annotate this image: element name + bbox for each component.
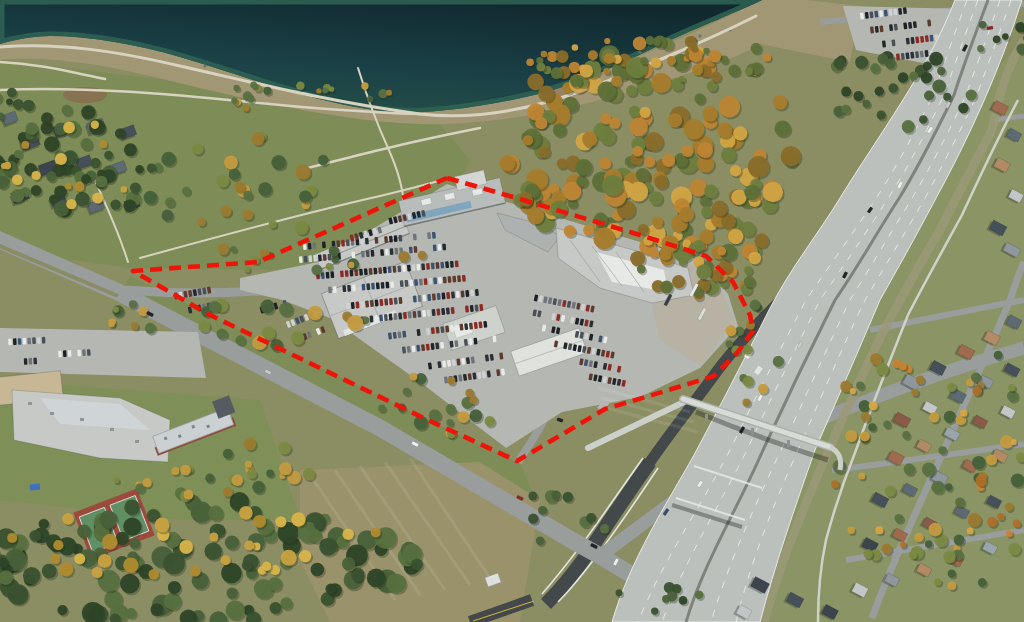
tree xyxy=(717,247,726,256)
tree xyxy=(184,490,194,500)
parked-car xyxy=(422,295,426,302)
parked-car xyxy=(385,282,389,289)
tree xyxy=(343,529,354,540)
tree xyxy=(46,171,56,181)
tree xyxy=(572,44,579,51)
tree xyxy=(845,430,857,442)
tree xyxy=(8,584,29,605)
tree xyxy=(342,557,356,571)
tree xyxy=(110,199,120,209)
tree xyxy=(704,184,718,198)
parked-car xyxy=(402,265,406,272)
tree xyxy=(971,373,981,383)
tree xyxy=(31,171,40,180)
parked-car xyxy=(432,294,436,301)
parked-car xyxy=(446,308,450,315)
parked-car xyxy=(360,238,364,245)
tree xyxy=(947,383,956,392)
tree xyxy=(943,551,955,563)
tree xyxy=(997,513,1004,520)
tree xyxy=(244,438,257,451)
tree xyxy=(563,492,573,502)
parked-car xyxy=(461,291,465,298)
tree xyxy=(860,432,870,442)
tree xyxy=(763,182,783,202)
tree xyxy=(226,601,245,620)
tree xyxy=(909,551,917,559)
tree xyxy=(347,315,363,331)
tree xyxy=(29,530,41,542)
parked-car xyxy=(82,349,86,356)
parked-car xyxy=(383,267,387,274)
tree xyxy=(126,608,136,618)
tree xyxy=(582,132,597,147)
tree xyxy=(651,607,658,614)
parked-car xyxy=(405,280,409,287)
tree xyxy=(662,154,675,167)
tree xyxy=(733,126,747,140)
parked-car xyxy=(330,271,334,278)
tree xyxy=(135,165,144,174)
parked-car xyxy=(389,236,393,243)
tree xyxy=(667,56,676,65)
tree xyxy=(1011,473,1024,487)
tree xyxy=(303,468,315,480)
tree xyxy=(1011,439,1017,445)
parked-car xyxy=(418,295,422,302)
tree xyxy=(600,129,616,145)
tree xyxy=(113,307,119,313)
tree xyxy=(130,183,141,194)
tree xyxy=(411,558,423,570)
tree xyxy=(863,549,872,558)
tree xyxy=(198,320,210,332)
parked-car xyxy=(390,248,394,255)
tree xyxy=(649,248,659,258)
parked-car xyxy=(42,337,46,344)
tree xyxy=(279,302,293,316)
tree xyxy=(239,506,253,520)
tree xyxy=(63,122,75,134)
tree xyxy=(91,121,99,129)
tree xyxy=(245,461,252,468)
tree xyxy=(652,217,663,228)
parked-car xyxy=(370,300,374,307)
tree xyxy=(679,76,685,82)
tree xyxy=(1013,520,1021,528)
parked-car xyxy=(455,260,459,267)
tree xyxy=(712,201,728,217)
parked-car xyxy=(470,290,474,297)
parked-car xyxy=(451,292,455,299)
aerial-screenshot xyxy=(0,0,1024,622)
tree xyxy=(876,363,889,376)
parked-car xyxy=(346,303,350,310)
tree xyxy=(883,421,890,428)
tree xyxy=(986,454,997,465)
tree xyxy=(954,535,965,546)
tree xyxy=(162,210,174,222)
tree xyxy=(834,57,846,69)
parked-car xyxy=(440,262,444,269)
parked-car xyxy=(33,358,37,365)
tree xyxy=(81,105,95,119)
tree xyxy=(90,158,100,168)
parked-car xyxy=(441,293,445,300)
tree xyxy=(234,181,245,192)
tree xyxy=(446,419,453,426)
tree xyxy=(758,384,768,394)
tree xyxy=(271,155,286,170)
parked-car xyxy=(442,244,446,251)
tree xyxy=(885,486,896,497)
parked-car xyxy=(379,315,383,322)
tree xyxy=(299,190,311,202)
tree xyxy=(371,528,381,538)
tree xyxy=(748,156,769,177)
vehicle xyxy=(987,26,993,30)
tree xyxy=(937,67,945,75)
tree xyxy=(314,519,325,530)
tree xyxy=(161,152,175,166)
tree xyxy=(929,412,939,422)
tree xyxy=(348,262,354,268)
parked-car xyxy=(359,269,363,276)
parked-car xyxy=(457,275,461,282)
tree xyxy=(925,540,933,548)
tree xyxy=(1008,543,1020,555)
parked-car xyxy=(389,314,393,321)
tree xyxy=(124,499,140,515)
tree xyxy=(923,61,932,70)
parked-car xyxy=(361,251,365,258)
tree xyxy=(628,182,648,202)
tree xyxy=(92,192,103,203)
tree xyxy=(446,404,456,414)
tree xyxy=(551,490,560,499)
tree xyxy=(730,165,741,176)
tree xyxy=(115,128,125,138)
parked-car xyxy=(416,264,420,271)
parked-car xyxy=(63,350,67,357)
tree xyxy=(74,182,84,192)
parked-car xyxy=(379,299,383,306)
tree xyxy=(242,105,249,112)
parked-car xyxy=(400,280,404,287)
tree xyxy=(266,470,274,478)
parked-car xyxy=(398,235,402,242)
parked-car xyxy=(308,243,312,250)
tree xyxy=(858,473,865,480)
tree xyxy=(526,59,534,67)
tree xyxy=(528,492,537,501)
parked-car xyxy=(436,262,440,269)
tree xyxy=(728,229,743,244)
tree xyxy=(994,351,1003,360)
parked-car xyxy=(427,294,431,301)
tree xyxy=(165,197,175,207)
tree xyxy=(42,564,57,579)
parked-car xyxy=(394,235,398,242)
tree xyxy=(629,106,641,118)
tree xyxy=(299,550,311,562)
tree xyxy=(104,151,113,160)
parked-car xyxy=(393,313,397,320)
tree xyxy=(208,506,223,521)
tree xyxy=(987,517,997,527)
tree xyxy=(570,75,583,88)
tree xyxy=(129,538,140,549)
tree xyxy=(653,37,661,45)
tree xyxy=(773,95,788,110)
tree xyxy=(726,340,734,348)
tree xyxy=(855,56,868,69)
tree xyxy=(763,53,771,61)
tree xyxy=(684,119,705,140)
tree xyxy=(654,175,668,189)
tree xyxy=(7,88,17,98)
parked-car xyxy=(441,308,445,315)
tree xyxy=(180,465,191,476)
parked-car xyxy=(465,306,469,313)
parked-car xyxy=(345,270,349,277)
tree xyxy=(223,449,233,459)
parked-car xyxy=(364,268,368,275)
tree xyxy=(651,73,671,93)
parked-car xyxy=(419,279,423,286)
tree xyxy=(958,103,968,113)
tree xyxy=(223,487,233,497)
tree xyxy=(113,477,119,483)
tree xyxy=(551,67,563,79)
parked-car xyxy=(414,246,418,253)
parked-car xyxy=(424,278,428,285)
tree xyxy=(914,533,923,542)
parked-car xyxy=(375,300,379,307)
tree xyxy=(848,527,855,534)
tree xyxy=(679,596,688,605)
parked-car xyxy=(376,282,380,289)
parked-car xyxy=(366,283,370,290)
tree xyxy=(651,58,662,69)
tree xyxy=(403,388,411,396)
tree xyxy=(252,481,265,494)
tree xyxy=(26,122,39,135)
tree xyxy=(469,396,478,405)
tree xyxy=(929,523,942,536)
tree xyxy=(754,233,768,247)
tree xyxy=(269,220,277,228)
tree xyxy=(745,67,753,75)
parked-car xyxy=(479,304,483,311)
tree xyxy=(227,587,238,598)
tree xyxy=(296,164,311,179)
tree xyxy=(960,409,967,416)
parked-car xyxy=(394,248,398,255)
tree xyxy=(611,76,622,87)
tree xyxy=(361,82,368,89)
tree xyxy=(528,513,538,523)
tree xyxy=(197,218,206,227)
tree xyxy=(120,574,140,594)
tree xyxy=(21,141,29,149)
tree xyxy=(604,53,615,64)
tree xyxy=(129,300,137,308)
parked-car xyxy=(360,301,364,308)
parked-car xyxy=(27,338,31,345)
parked-car xyxy=(462,275,466,282)
tree xyxy=(667,591,677,601)
tree xyxy=(744,276,755,287)
tree xyxy=(743,345,753,355)
tree xyxy=(921,72,933,84)
parked-car xyxy=(346,239,350,246)
tree xyxy=(190,566,201,577)
tree xyxy=(243,209,254,220)
tree xyxy=(773,356,784,367)
tree xyxy=(318,155,328,165)
tree xyxy=(586,513,596,523)
tree xyxy=(979,21,987,29)
parked-car xyxy=(8,339,12,346)
tree xyxy=(57,605,67,615)
aerial-photo xyxy=(0,0,1024,622)
tree xyxy=(943,93,951,101)
tree xyxy=(538,86,554,102)
tree xyxy=(325,584,336,595)
tree xyxy=(217,328,228,339)
tree xyxy=(703,48,709,54)
parked-car xyxy=(355,302,359,309)
tree xyxy=(841,87,851,97)
parked-car xyxy=(336,240,340,247)
tree xyxy=(220,206,231,217)
parked-car xyxy=(308,255,312,262)
tree xyxy=(44,136,60,152)
tree xyxy=(644,156,655,167)
parked-car xyxy=(29,358,33,365)
tree xyxy=(99,510,117,528)
tree xyxy=(329,87,334,92)
tree xyxy=(536,63,545,72)
tree xyxy=(316,88,321,93)
parked-car xyxy=(398,313,402,320)
tree xyxy=(218,244,229,255)
tree xyxy=(603,68,610,75)
tree xyxy=(564,225,576,237)
tree xyxy=(251,132,264,145)
blue-bin xyxy=(30,484,40,491)
tree xyxy=(781,146,801,166)
tree xyxy=(275,516,286,527)
tree xyxy=(41,112,53,124)
parked-car xyxy=(362,284,366,291)
tree xyxy=(885,58,896,69)
tree xyxy=(744,266,752,274)
tree xyxy=(948,570,956,578)
tree xyxy=(881,544,892,555)
tree xyxy=(329,246,340,257)
tree xyxy=(934,578,941,585)
parked-car xyxy=(432,309,436,316)
parked-car xyxy=(318,254,322,261)
tree xyxy=(229,169,240,180)
tree xyxy=(123,518,141,536)
tree xyxy=(398,251,409,262)
tree xyxy=(968,513,982,527)
tree xyxy=(99,140,107,148)
tree xyxy=(909,72,918,81)
tree xyxy=(916,376,925,385)
tree xyxy=(221,555,231,565)
parked-car xyxy=(351,302,355,309)
parked-car xyxy=(475,289,479,296)
parked-car xyxy=(341,240,345,247)
tree xyxy=(378,405,386,413)
tree xyxy=(367,96,373,102)
tree xyxy=(726,325,737,336)
parked-car xyxy=(397,265,401,272)
tree xyxy=(538,506,547,515)
tree xyxy=(149,569,159,579)
tree xyxy=(600,524,610,534)
tree xyxy=(967,528,974,535)
tree xyxy=(870,63,880,73)
tree xyxy=(144,191,158,205)
tree xyxy=(877,111,886,120)
tree xyxy=(831,480,839,488)
tree xyxy=(972,386,982,396)
tree xyxy=(485,416,496,427)
parked-car xyxy=(77,350,81,357)
tree xyxy=(12,174,23,185)
tree xyxy=(637,265,646,274)
parked-car xyxy=(427,310,431,317)
tree xyxy=(155,518,170,533)
tree xyxy=(102,534,118,550)
tree xyxy=(258,182,272,196)
tree xyxy=(632,146,643,157)
parked-car xyxy=(433,244,437,251)
parked-car xyxy=(475,305,479,312)
parked-car xyxy=(322,241,326,248)
tree xyxy=(679,207,694,222)
tree xyxy=(236,335,246,345)
parked-car xyxy=(374,315,378,322)
parked-car xyxy=(445,261,449,268)
tree xyxy=(23,567,40,584)
tree xyxy=(523,135,533,145)
tree xyxy=(977,45,984,52)
parked-car xyxy=(409,247,413,254)
parked-car xyxy=(32,337,36,344)
tree xyxy=(633,37,647,51)
tree xyxy=(62,513,74,525)
parked-car xyxy=(403,312,407,319)
tree xyxy=(182,187,191,196)
tree xyxy=(576,159,593,176)
tree xyxy=(124,143,137,156)
tree xyxy=(151,603,164,616)
tree xyxy=(92,567,103,578)
tree xyxy=(895,514,904,523)
tree xyxy=(583,225,594,236)
tree xyxy=(322,87,328,93)
tree xyxy=(291,332,305,346)
tree xyxy=(630,251,645,266)
tree xyxy=(225,536,239,550)
parked-car xyxy=(388,266,392,273)
